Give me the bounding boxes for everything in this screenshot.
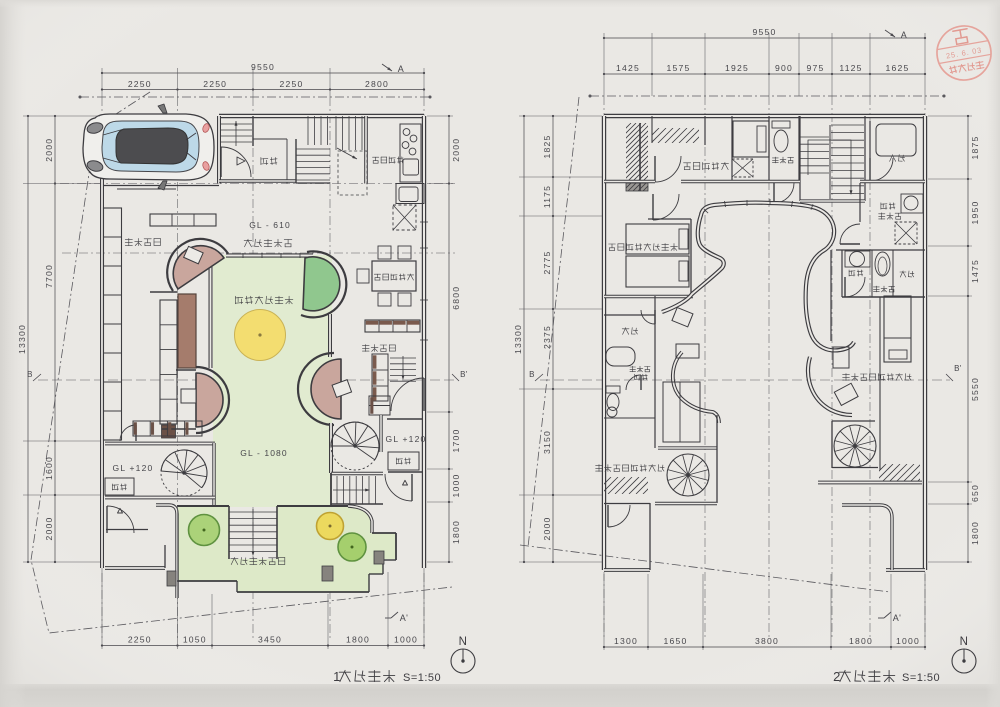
svg-text:1925: 1925 (725, 63, 749, 73)
svg-text:2775: 2775 (542, 251, 552, 275)
svg-text:1125: 1125 (839, 63, 862, 73)
svg-text:A: A (901, 30, 907, 40)
svg-text:975: 975 (807, 63, 825, 73)
svg-text:1800: 1800 (970, 521, 980, 545)
svg-text:1300: 1300 (614, 636, 638, 646)
svg-text:9550: 9550 (753, 27, 777, 37)
svg-text:3800: 3800 (755, 636, 779, 646)
svg-text:1575: 1575 (667, 63, 691, 73)
svg-text:S=1:50: S=1:50 (403, 672, 441, 684)
svg-text:2000: 2000 (44, 138, 54, 162)
svg-text:GL +120: GL +120 (386, 434, 427, 444)
svg-text:1800: 1800 (346, 635, 370, 645)
svg-text:6800: 6800 (451, 286, 461, 310)
svg-text:5550: 5550 (970, 377, 980, 401)
svg-text:1175: 1175 (542, 185, 552, 208)
svg-text:3150: 3150 (542, 430, 552, 454)
svg-text:B': B' (460, 370, 468, 379)
svg-text:1800: 1800 (849, 636, 873, 646)
svg-text:1000: 1000 (394, 635, 418, 645)
svg-text:GL - 610: GL - 610 (249, 220, 291, 230)
svg-text:2375: 2375 (542, 325, 552, 349)
svg-text:S=1:50: S=1:50 (902, 672, 940, 684)
svg-text:2250: 2250 (128, 635, 152, 645)
svg-text:2250: 2250 (203, 79, 227, 89)
svg-text:2250: 2250 (280, 79, 304, 89)
svg-text:2000: 2000 (451, 138, 461, 162)
svg-text:1650: 1650 (664, 636, 688, 646)
svg-text:1050: 1050 (183, 635, 207, 645)
svg-text:7700: 7700 (44, 264, 54, 288)
svg-text:2000: 2000 (542, 517, 552, 541)
svg-text:1800: 1800 (451, 520, 461, 544)
svg-text:1625: 1625 (886, 63, 910, 73)
svg-text:9550: 9550 (251, 62, 275, 72)
svg-text:GL - 1080: GL - 1080 (240, 448, 287, 458)
svg-text:GL +120: GL +120 (113, 463, 154, 473)
svg-text:650: 650 (970, 484, 980, 502)
svg-text:B: B (529, 370, 535, 379)
svg-text:1950: 1950 (970, 201, 980, 225)
svg-text:3450: 3450 (258, 635, 282, 645)
svg-text:1000: 1000 (896, 636, 920, 646)
svg-text:2250: 2250 (128, 79, 152, 89)
svg-text:1600: 1600 (44, 456, 54, 480)
svg-text:2800: 2800 (365, 79, 389, 89)
svg-text:A: A (398, 64, 404, 74)
svg-text:2000: 2000 (44, 517, 54, 541)
svg-text:1825: 1825 (542, 135, 552, 159)
svg-text:1475: 1475 (970, 259, 980, 283)
svg-text:1875: 1875 (970, 136, 980, 160)
svg-text:1000: 1000 (451, 474, 461, 498)
svg-text:13300: 13300 (17, 324, 27, 354)
svg-text:N: N (459, 636, 468, 648)
svg-text:A': A' (400, 613, 409, 623)
svg-text:A': A' (893, 613, 902, 623)
svg-text:N: N (960, 636, 969, 648)
svg-text:900: 900 (775, 63, 793, 73)
svg-text:1425: 1425 (616, 63, 640, 73)
svg-text:1700: 1700 (451, 429, 461, 453)
svg-text:13300: 13300 (513, 324, 523, 354)
svg-text:B': B' (954, 364, 962, 373)
